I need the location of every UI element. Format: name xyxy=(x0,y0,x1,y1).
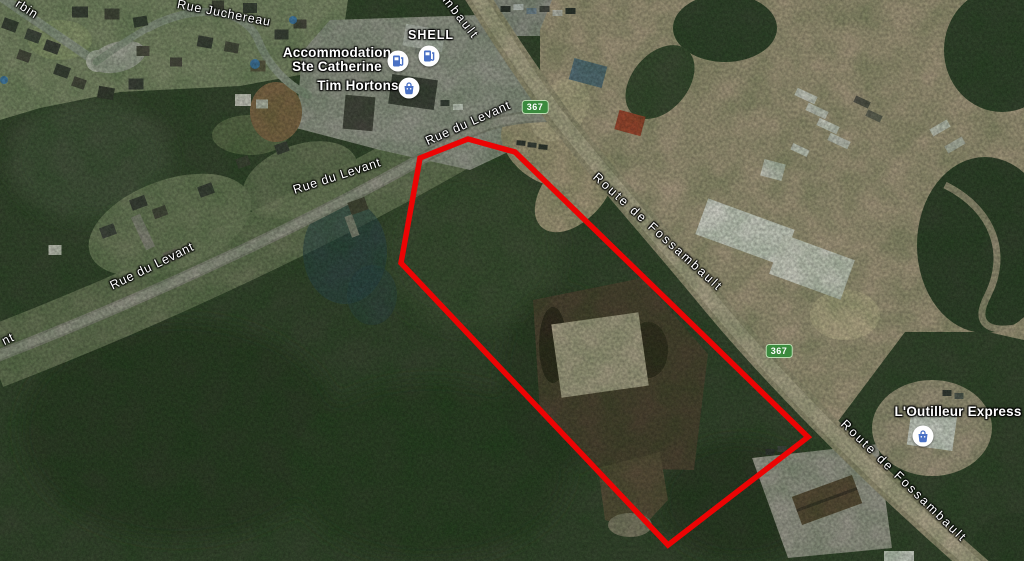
poi-label-accommodation-line2: Ste Catherine xyxy=(283,60,391,74)
poi-label-shell[interactable]: SHELL xyxy=(408,28,454,42)
poi-label-accommodation[interactable]: Accommodation Ste Catherine xyxy=(283,46,391,74)
gas-pump-icon[interactable] xyxy=(419,46,440,67)
satellite-map-view: Rue du Levant Rue du Levant Rue du Levan… xyxy=(0,0,1024,561)
shopping-bag-icon[interactable] xyxy=(913,426,934,447)
shopping-bag-glyph xyxy=(917,430,930,443)
satellite-imagery xyxy=(0,0,1024,561)
photo-texture xyxy=(0,0,1024,561)
route-367-badge-south: 367 xyxy=(766,344,793,358)
gas-pump-icon[interactable] xyxy=(388,51,409,72)
shopping-bag-icon[interactable] xyxy=(399,78,420,99)
poi-label-tim-hortons[interactable]: Tim Hortons xyxy=(317,79,398,93)
gas-pump-glyph xyxy=(392,55,405,68)
route-367-badge-north: 367 xyxy=(522,100,549,114)
gas-pump-glyph xyxy=(423,50,436,63)
poi-label-accommodation-line1: Accommodation xyxy=(283,46,391,60)
shopping-bag-glyph xyxy=(403,82,416,95)
poi-label-outilleur-express[interactable]: L'Outilleur Express xyxy=(894,405,1021,419)
